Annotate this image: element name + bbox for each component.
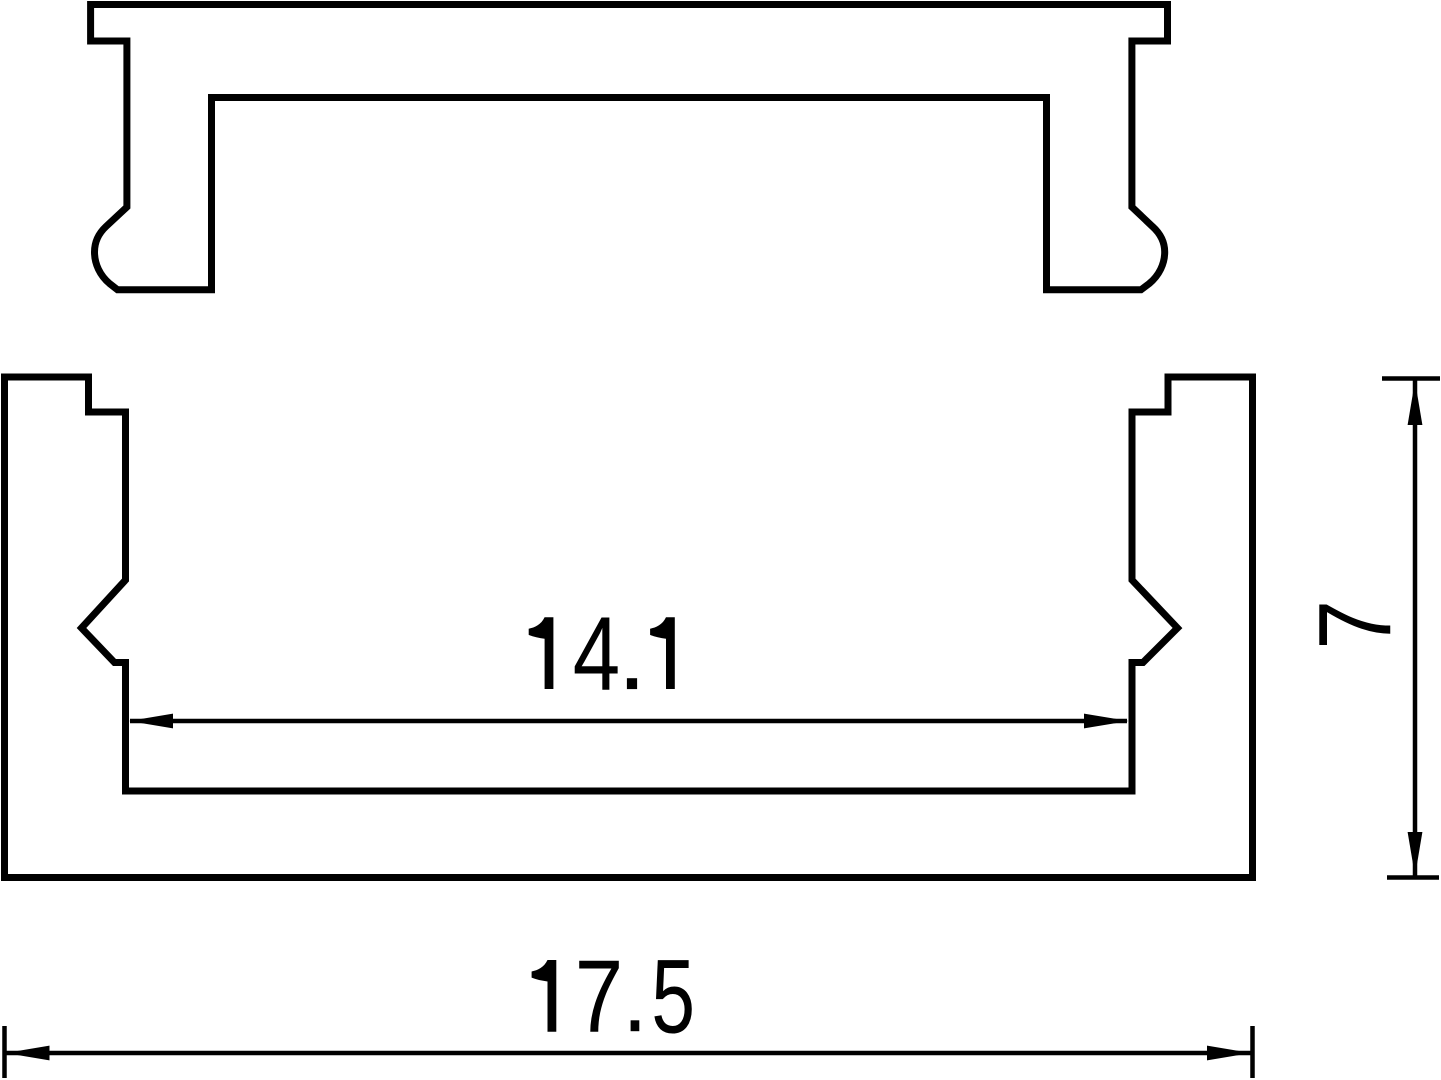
svg-text:7: 7 bbox=[1299, 600, 1413, 650]
svg-text:5: 5 bbox=[651, 937, 695, 1055]
svg-text:4: 4 bbox=[573, 597, 620, 713]
svg-text:7: 7 bbox=[575, 940, 623, 1055]
